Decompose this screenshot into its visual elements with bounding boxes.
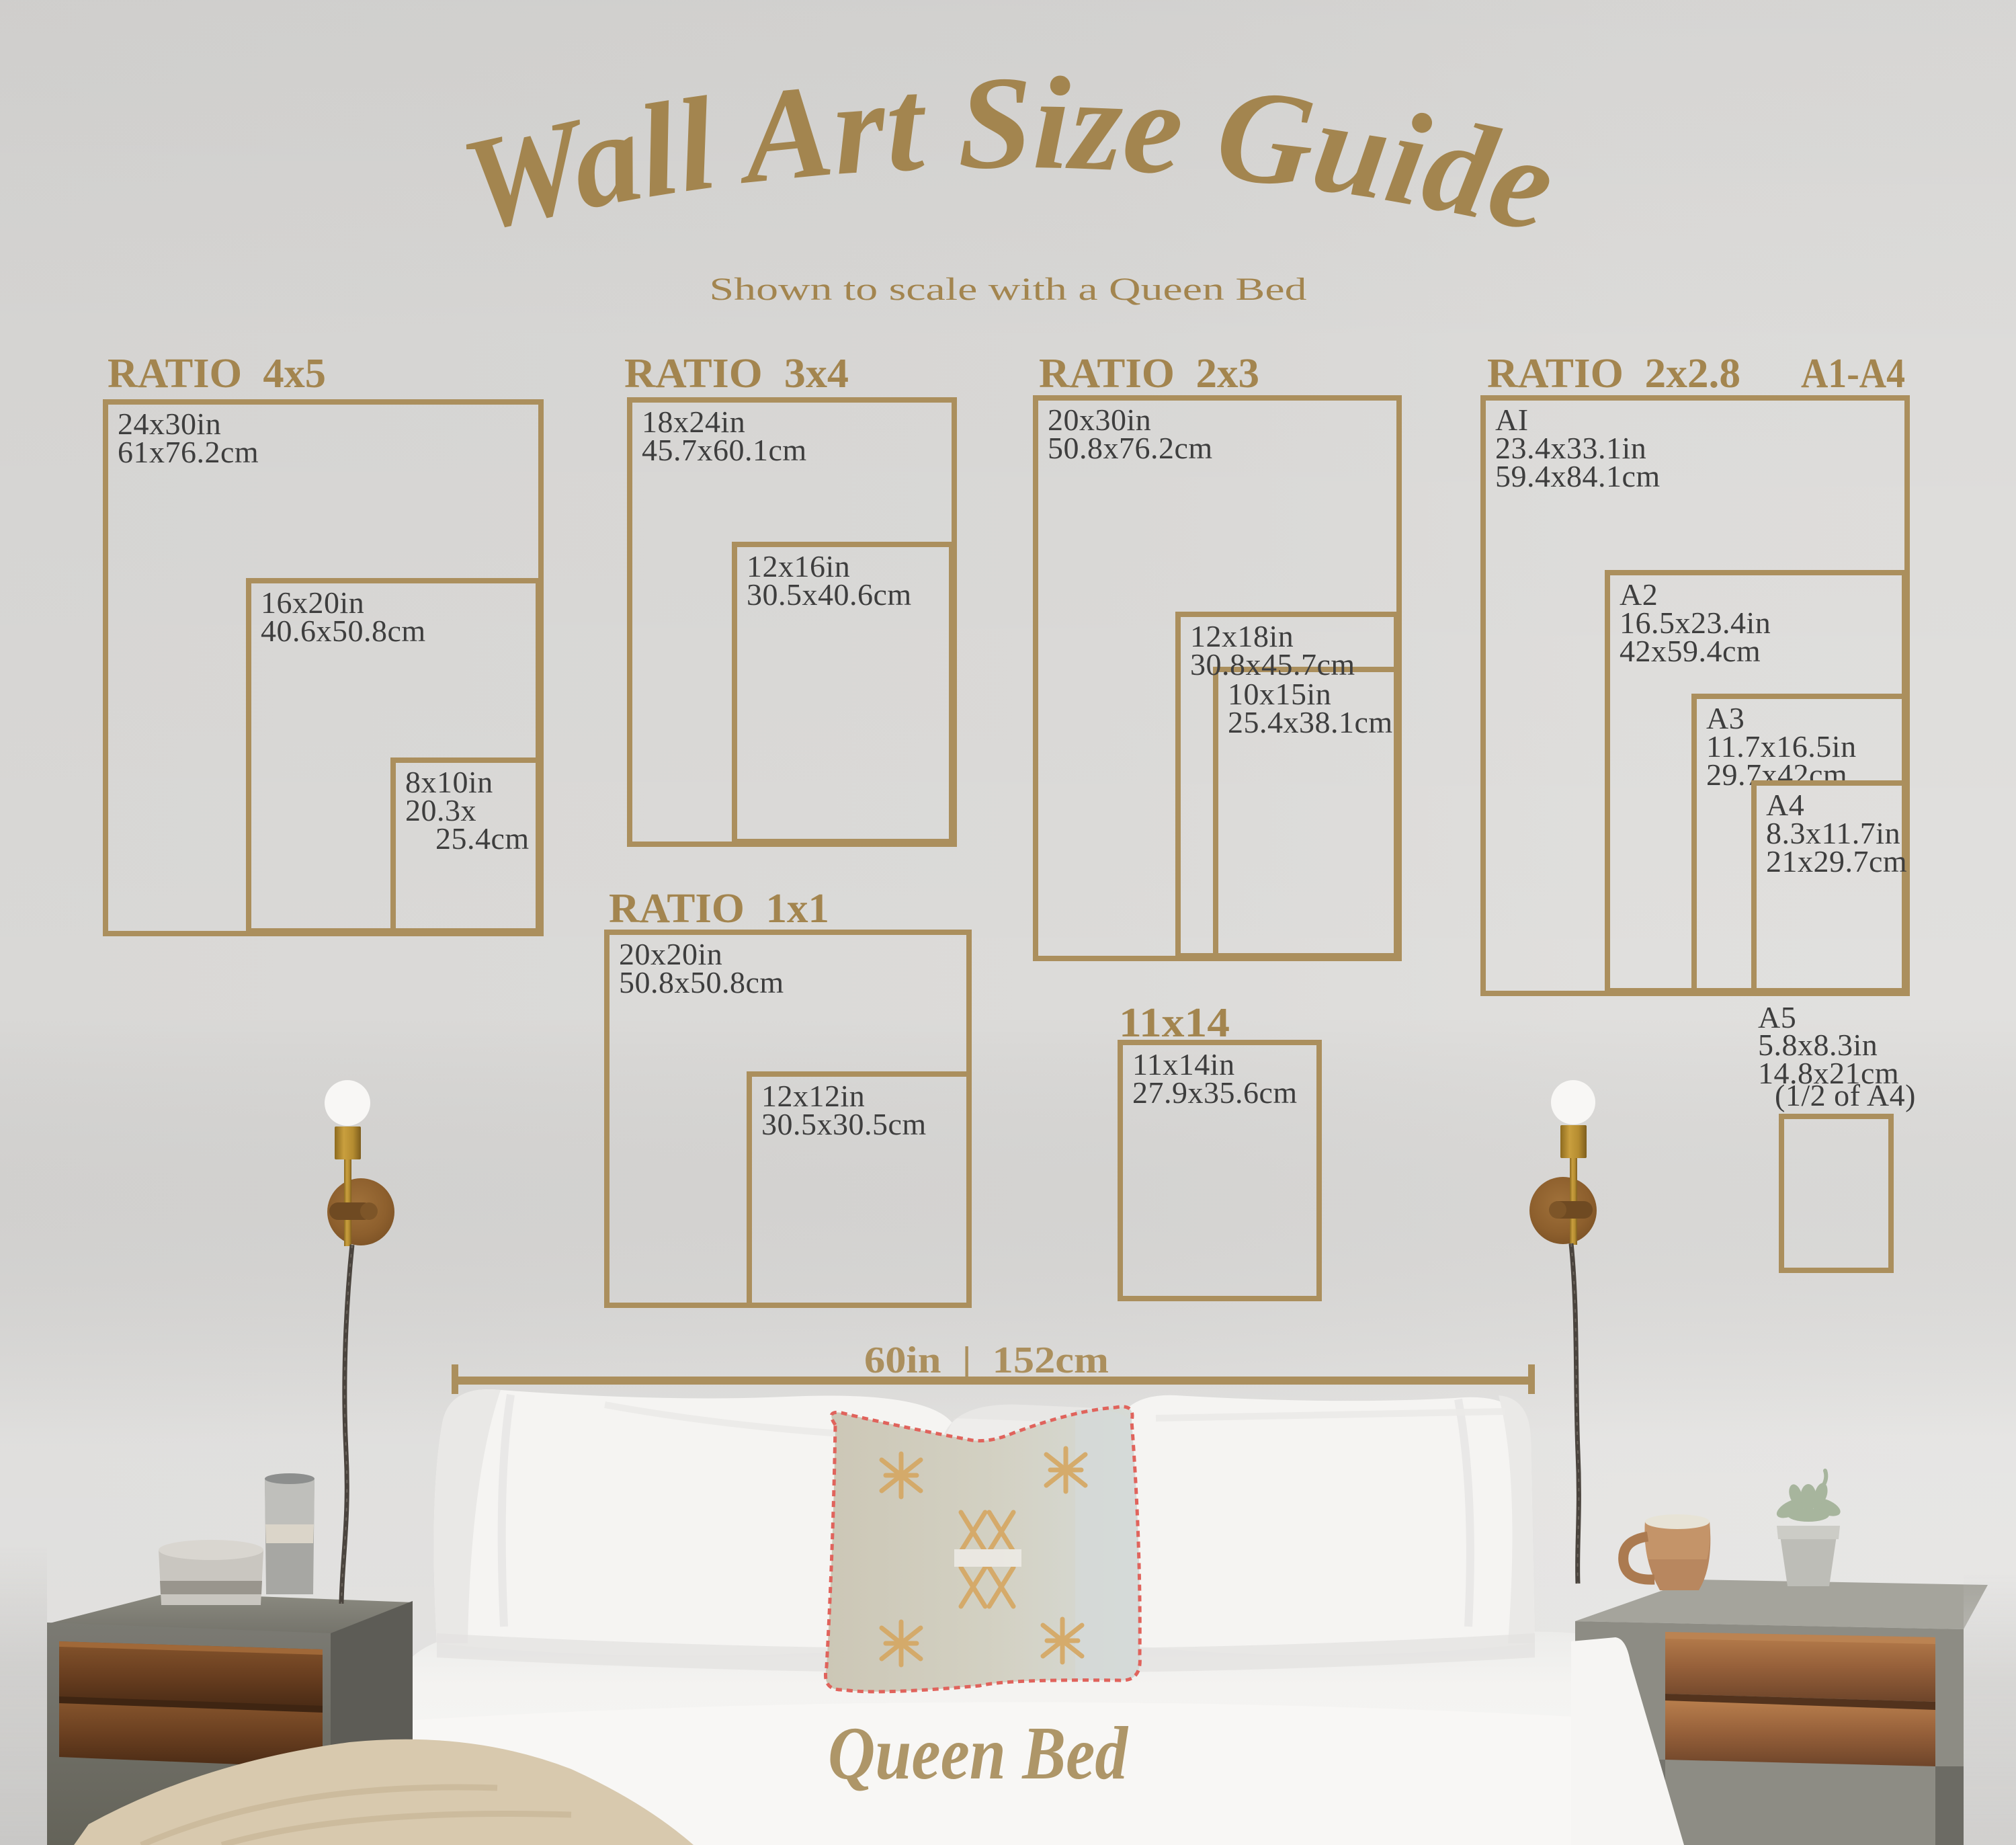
svg-text:29.7x42cm: 29.7x42cm (1706, 757, 1847, 792)
svg-text:59.4x84.1cm: 59.4x84.1cm (1495, 459, 1661, 493)
svg-text:Queen Bed: Queen Bed (828, 1712, 1129, 1795)
svg-text:A1-A4: A1-A4 (1801, 351, 1905, 397)
svg-text:25.4x38.1cm: 25.4x38.1cm (1228, 705, 1393, 739)
svg-text:RATIO 2x2.8: RATIO 2x2.8 (1487, 351, 1740, 397)
svg-text:(1/2 of A4): (1/2 of A4) (1775, 1078, 1916, 1112)
svg-text:61x76.2cm: 61x76.2cm (118, 435, 259, 469)
svg-text:40.6x50.8cm: 40.6x50.8cm (261, 614, 426, 648)
svg-text:27.9x35.6cm: 27.9x35.6cm (1132, 1075, 1298, 1110)
svg-text:60in | 152cm: 60in | 152cm (864, 1340, 1109, 1381)
svg-text:25.4cm: 25.4cm (435, 821, 530, 856)
svg-text:42x59.4cm: 42x59.4cm (1620, 634, 1761, 668)
svg-text:50.8x50.8cm: 50.8x50.8cm (619, 965, 784, 999)
svg-text:30.5x30.5cm: 30.5x30.5cm (761, 1107, 927, 1141)
svg-text:50.8x76.2cm: 50.8x76.2cm (1048, 431, 1213, 465)
svg-text:RATIO 2x3: RATIO 2x3 (1039, 351, 1259, 397)
svg-text:30.5x40.6cm: 30.5x40.6cm (747, 577, 912, 612)
svg-text:Shown to scale with a Queen Be: Shown to scale with a Queen Bed (710, 272, 1307, 307)
svg-text:11x14: 11x14 (1119, 1000, 1230, 1046)
svg-text:RATIO 1x1: RATIO 1x1 (609, 886, 829, 932)
svg-text:RATIO 3x4: RATIO 3x4 (624, 351, 849, 397)
svg-text:RATIO 4x5: RATIO 4x5 (108, 351, 326, 397)
svg-text:21x29.7cm: 21x29.7cm (1766, 844, 1907, 878)
svg-text:45.7x60.1cm: 45.7x60.1cm (642, 433, 807, 467)
